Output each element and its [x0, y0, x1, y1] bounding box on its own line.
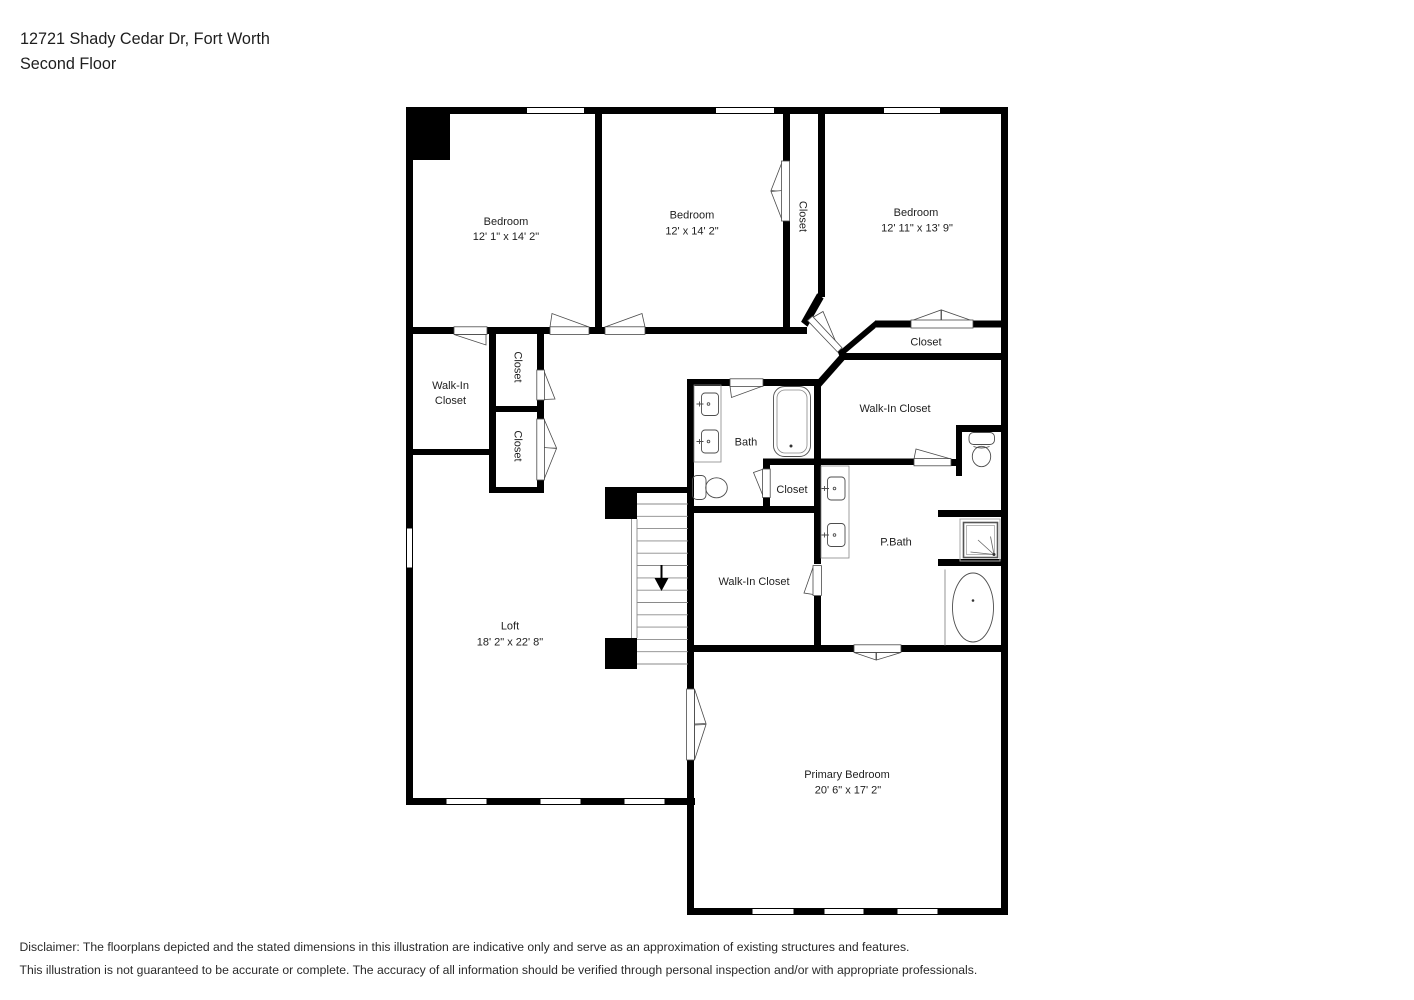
svg-text:12721 Shady Cedar Dr, Fort Wor: 12721 Shady Cedar Dr, Fort Worth [20, 30, 270, 48]
svg-text:Walk-In Closet: Walk-In Closet [859, 403, 930, 415]
svg-text:Bedroom: Bedroom [484, 216, 529, 228]
svg-text:20' 6" x 17' 2": 20' 6" x 17' 2" [815, 785, 882, 797]
svg-text:12' x 14' 2": 12' x 14' 2" [665, 226, 718, 238]
svg-text:Bedroom: Bedroom [894, 207, 939, 219]
svg-text:Closet: Closet [435, 395, 466, 407]
svg-text:Disclaimer: The floorplans dep: Disclaimer: The floorplans depicted and … [20, 940, 910, 954]
svg-text:Bath: Bath [735, 437, 758, 449]
svg-text:Closet: Closet [512, 430, 524, 461]
svg-text:Bedroom: Bedroom [670, 210, 715, 222]
svg-text:This illustration is not guara: This illustration is not guaranteed to b… [20, 963, 978, 977]
svg-text:12' 11" x 13' 9": 12' 11" x 13' 9" [881, 223, 953, 235]
svg-text:Closet: Closet [776, 484, 807, 496]
svg-text:18' 2" x 22' 8": 18' 2" x 22' 8" [477, 637, 544, 649]
svg-text:12' 1" x 14' 2": 12' 1" x 14' 2" [473, 231, 540, 243]
svg-text:Walk-In: Walk-In [432, 380, 469, 392]
svg-text:Second Floor: Second Floor [20, 55, 117, 73]
svg-text:Closet: Closet [910, 337, 941, 349]
svg-text:Walk-In Closet: Walk-In Closet [718, 576, 789, 588]
svg-text:Primary Bedroom: Primary Bedroom [804, 769, 890, 781]
svg-text:Closet: Closet [512, 351, 524, 382]
svg-text:Closet: Closet [797, 201, 809, 232]
svg-text:Loft: Loft [501, 621, 519, 633]
svg-text:P.Bath: P.Bath [880, 537, 912, 549]
